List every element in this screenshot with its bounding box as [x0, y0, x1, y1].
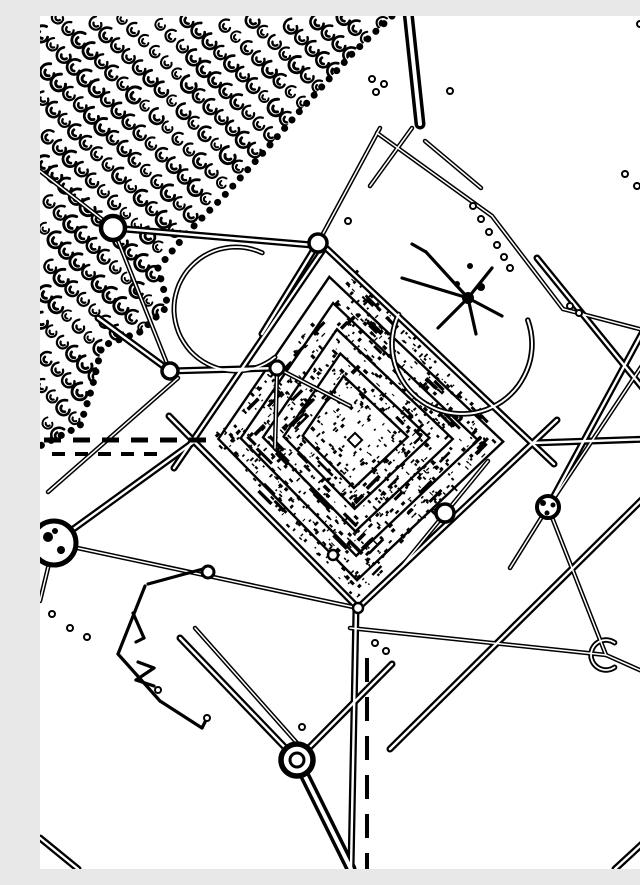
edge-detected-photo	[40, 16, 640, 869]
scene-canvas	[40, 16, 640, 869]
strut-cores	[40, 16, 640, 869]
insulator-cluster	[402, 244, 502, 334]
